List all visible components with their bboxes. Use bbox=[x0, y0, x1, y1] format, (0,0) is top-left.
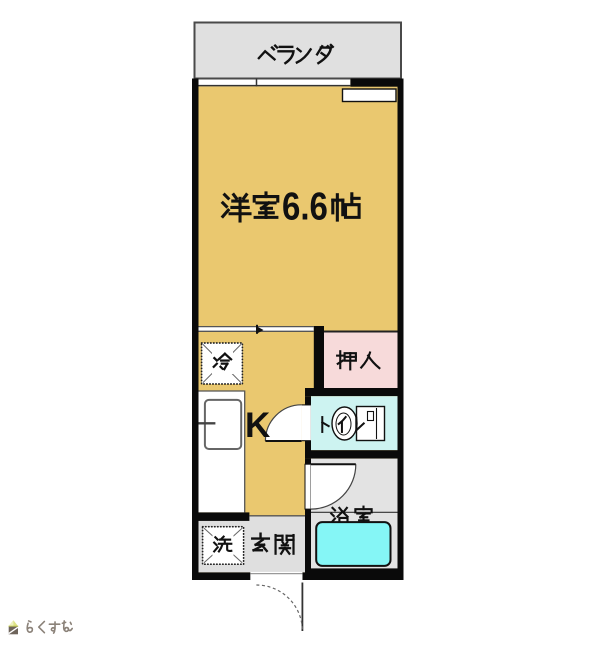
svg-text:K: K bbox=[245, 406, 270, 445]
svg-text:6.6: 6.6 bbox=[282, 184, 328, 228]
